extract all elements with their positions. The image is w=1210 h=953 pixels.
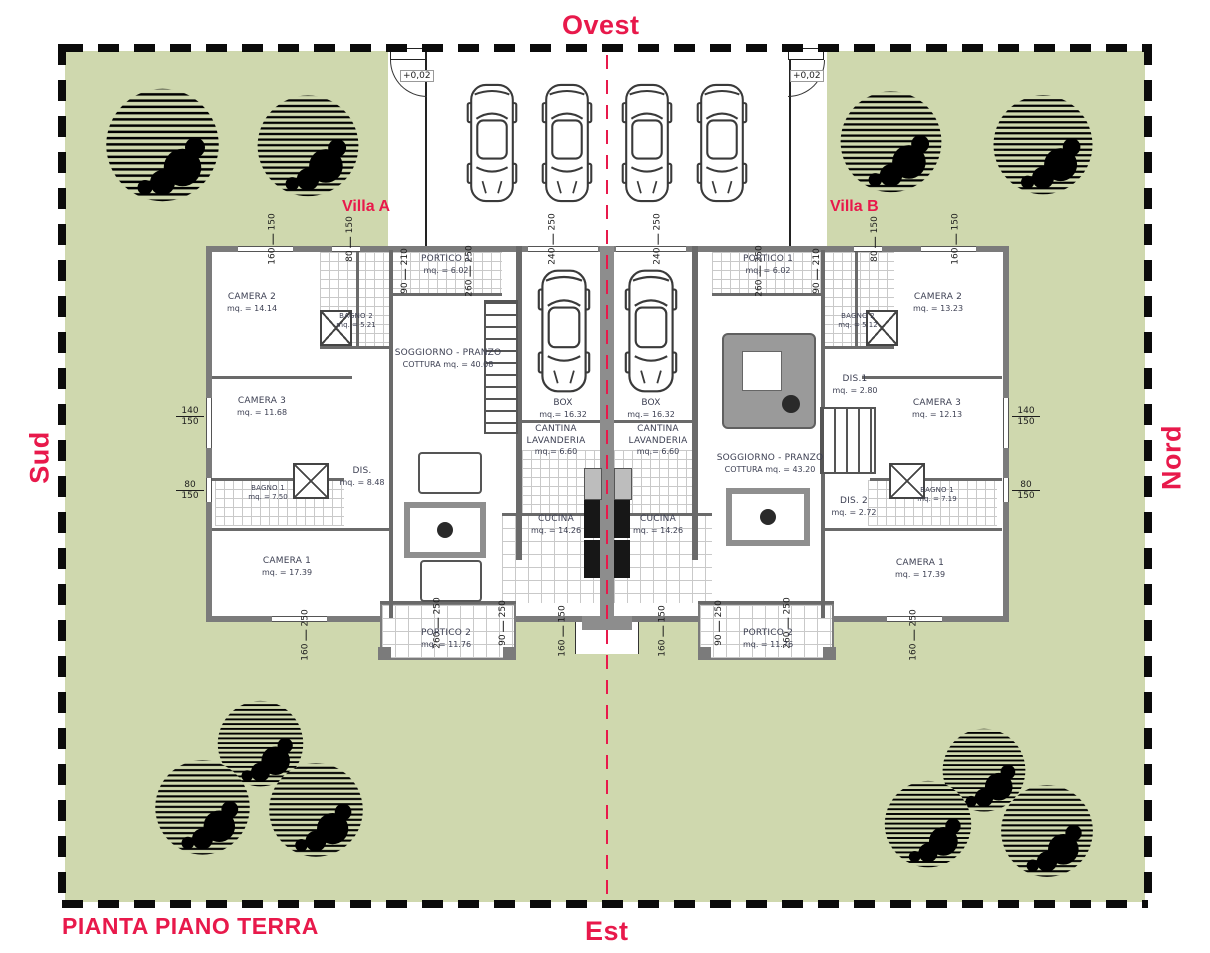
- tree-icon: [988, 92, 1098, 202]
- boundary-left: [58, 44, 66, 908]
- pillar: [503, 647, 516, 660]
- dimension: 80150: [870, 216, 880, 262]
- boundary-bottom: [62, 900, 1148, 908]
- room-label-bagno1-b: BAGNO 1mq. = 7.19: [917, 486, 956, 504]
- tree-icon: [996, 782, 1098, 884]
- dimension: 160150: [658, 605, 668, 656]
- car-icon: [466, 78, 518, 208]
- dimension: 240250: [653, 213, 663, 264]
- car-icon: [621, 78, 673, 208]
- room-label-camera1-a: CAMERA 1mq. = 17.39: [262, 556, 312, 578]
- window: [206, 398, 212, 448]
- car-icon: [541, 78, 593, 208]
- dimension: 90210: [400, 248, 410, 294]
- room-label-portico1-a: PORTICO 1mq. = 6.02: [421, 254, 471, 276]
- wall: [212, 376, 352, 379]
- pillar: [698, 647, 711, 660]
- room-label-box-b: BOXmq.= 16.32: [627, 398, 675, 420]
- wall: [712, 293, 822, 296]
- room-label-portico2-b: PORTICO 2mq. = 11.76: [743, 628, 793, 650]
- sink-icon: [614, 468, 632, 500]
- wall: [356, 250, 359, 346]
- property-centerline: [606, 55, 608, 898]
- wall: [614, 420, 692, 423]
- room-label-soggiorno-b: SOGGIORNO - PRANZOCOTTURA mq. = 43.20: [717, 453, 824, 475]
- room-label-cucina-b: CUCINAmq. = 14.26: [633, 514, 683, 536]
- tree-icon: [880, 778, 976, 874]
- room-label-camera2-b: CAMERA 2mq. = 13.23: [913, 292, 963, 314]
- stove-icon: [584, 500, 600, 538]
- dimension: 160250: [909, 609, 919, 660]
- dimension: 160150: [951, 213, 961, 264]
- room-label-camera1-b: CAMERA 1mq. = 17.39: [895, 558, 945, 580]
- villa-b-label: Villa B: [830, 198, 915, 216]
- compass-nord: Nord: [1157, 408, 1188, 508]
- stove-icon: [614, 540, 630, 578]
- tree-icon: [252, 92, 364, 204]
- wall: [522, 420, 600, 423]
- pillar: [823, 647, 836, 660]
- stove-icon: [614, 500, 630, 538]
- sofa-icon: [420, 560, 482, 602]
- window: [1003, 478, 1009, 502]
- room-label-dis-a: DIS.mq. = 8.48: [339, 466, 384, 488]
- room-label-bagno1-a: BAGNO 1mq. = 7.50: [248, 484, 287, 502]
- wall: [389, 250, 393, 618]
- level-label-right: +0,02: [790, 70, 824, 82]
- wall: [855, 250, 858, 346]
- room-label-bagno2-b: BAGNO 2mq. = 5.12: [838, 312, 877, 330]
- wall: [862, 376, 1002, 379]
- room-label-cucina-a: CUCINAmq. = 14.26: [531, 514, 581, 536]
- room-label-camera3-b: CAMERA 3mq. = 12.13: [912, 398, 962, 420]
- dimension: 160250: [301, 609, 311, 660]
- wall: [822, 346, 894, 349]
- garage-door: [616, 246, 686, 252]
- room-label-dis1-b: DIS.1mq. = 2.80: [832, 374, 877, 396]
- dining-table-icon: [404, 502, 486, 558]
- room-label-cantina-a: CANTINALAVANDERIAmq.= 6.60: [527, 424, 586, 458]
- stairs-icon: [820, 407, 876, 474]
- dimension: 80150: [1012, 480, 1040, 502]
- wall: [822, 528, 1002, 531]
- sofa-icon: [418, 452, 482, 494]
- floor-plan: 160150 80150 240250 240250 80150 160150 …: [0, 0, 1210, 953]
- window: [921, 246, 976, 252]
- dimension: 140150: [176, 406, 204, 428]
- room-label-camera3-a: CAMERA 3mq. = 11.68: [237, 396, 287, 418]
- corner-sofa-icon: [722, 333, 816, 429]
- dimension: 90250: [498, 600, 508, 646]
- wall: [212, 528, 392, 531]
- boundary-right: [1144, 44, 1152, 908]
- car-icon: [537, 266, 591, 396]
- dimension: 80150: [176, 480, 204, 502]
- dimension: 90250: [714, 600, 724, 646]
- room-label-dis2-b: DIS. 2mq. = 2.72: [831, 496, 876, 518]
- compass-est: Est: [585, 916, 629, 947]
- window: [206, 478, 212, 502]
- dimension: 160150: [558, 605, 568, 656]
- car-icon: [696, 78, 748, 208]
- wall: [320, 346, 392, 349]
- room-label-bagno2-a: BAGNO 2mq. = 5.21: [336, 312, 375, 330]
- room-label-portico2-a: PORTICO 2mq. = 11.76: [421, 628, 471, 650]
- room-label-soggiorno-a: SOGGIORNO - PRANZOCOTTURA mq. = 40.08: [395, 348, 502, 370]
- room-label-portico1-b: PORTICO 1mq. = 6.02: [743, 254, 793, 276]
- dimension: 140150: [1012, 406, 1040, 428]
- compass-sud: Sud: [25, 408, 56, 508]
- room-label-camera2-a: CAMERA 2mq. = 14.14: [227, 292, 277, 314]
- room-label-cantina-b: CANTINALAVANDERIAmq.= 6.60: [629, 424, 688, 458]
- pillar: [378, 647, 391, 660]
- window: [272, 616, 327, 622]
- dimension: 160150: [268, 213, 278, 264]
- window: [1003, 398, 1009, 448]
- dimension: 90210: [812, 248, 822, 294]
- page-title: PIANTA PIANO TERRA: [62, 913, 319, 940]
- stove-icon: [584, 540, 600, 578]
- dimension: 240250: [548, 213, 558, 264]
- tree-icon: [100, 85, 225, 210]
- window: [238, 246, 293, 252]
- tree-icon: [835, 88, 947, 200]
- tree-icon: [150, 757, 255, 862]
- dimension: 80150: [345, 216, 355, 262]
- dining-table-icon: [726, 488, 810, 546]
- sink-icon: [584, 468, 602, 500]
- car-icon: [624, 266, 678, 396]
- tree-icon: [264, 760, 368, 864]
- level-label-left: +0,02: [400, 70, 434, 82]
- shaft-icon: [293, 463, 329, 499]
- boundary-top: [62, 44, 1148, 52]
- compass-ovest: Ovest: [562, 10, 640, 41]
- garage-door: [528, 246, 598, 252]
- room-label-box-a: BOXmq.= 16.32: [539, 398, 587, 420]
